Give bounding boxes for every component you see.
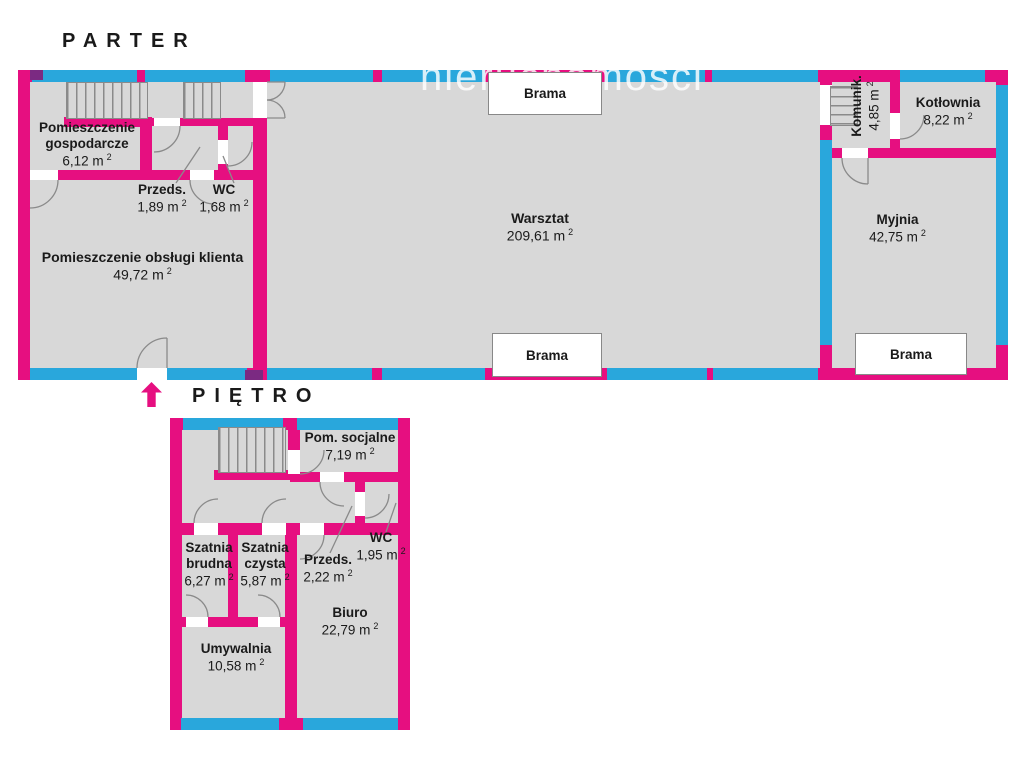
room-name: Przeds. (298, 552, 358, 568)
room-name: Szatnia czysta (236, 540, 294, 572)
room-name: WC (352, 530, 410, 546)
area-sup: 2 (865, 81, 875, 86)
door-arc (365, 494, 389, 518)
door-arc (186, 595, 208, 617)
room-name: Pomieszczenie obsługi klienta (30, 249, 255, 266)
room-area: 1,95 m2 (352, 546, 410, 563)
area-sup: 2 (182, 198, 187, 208)
area-value: 4,85 m (866, 89, 881, 130)
area-sup: 2 (968, 111, 973, 121)
area-sup: 2 (568, 227, 573, 237)
leader-line (386, 503, 396, 532)
area-value: 5,87 m (240, 573, 281, 588)
door-arc (228, 142, 252, 166)
area-sup: 2 (259, 657, 264, 667)
area-value: 6,27 m (184, 573, 225, 588)
door-arc (30, 180, 58, 208)
area-sup: 2 (921, 228, 926, 238)
leader-line (330, 506, 352, 553)
area-value: 209,61 m (507, 227, 565, 243)
area-value: 49,72 m (113, 266, 164, 282)
door-arc (194, 499, 218, 523)
door-arc (842, 158, 868, 184)
room-label-warsztat: Warsztat 209,61 m2 (460, 210, 620, 244)
room-name: Biuro (305, 605, 395, 621)
room-area: 2,22 m2 (298, 568, 358, 585)
room-name: Kotłownia (900, 95, 996, 111)
door-arc (137, 338, 167, 368)
leader-line (176, 147, 200, 183)
room-area: 49,72 m2 (30, 266, 255, 283)
leader-line (223, 156, 234, 183)
room-area: 7,19 m2 (302, 446, 398, 463)
room-area: 10,58 m2 (186, 657, 286, 674)
area-sup: 2 (348, 568, 353, 578)
room-label-obslugi-klienta: Pomieszczenie obsługi klienta 49,72 m2 (30, 249, 255, 283)
room-label-przeds-pietro: Przeds. 2,22 m2 (298, 552, 358, 585)
area-sup: 2 (370, 446, 375, 456)
room-label-wc-parter: WC 1,68 m2 (196, 182, 252, 215)
door-arc (320, 482, 344, 506)
door-arc (267, 82, 285, 100)
area-value: 7,19 m (325, 447, 366, 462)
room-area: 5,87 m2 (236, 572, 294, 589)
room-label-umywalnia: Umywalnia 10,58 m2 (186, 641, 286, 674)
area-value: 42,75 m (869, 229, 918, 244)
room-name: Myjnia (840, 212, 955, 228)
room-label-pomieszczenie-gospodarcze: Pomieszczenie gospodarcze 6,12 m2 (28, 120, 146, 169)
room-name: Warsztat (460, 210, 620, 227)
pietro-title: PIĘTRO (192, 385, 320, 408)
room-name: Komunik. (849, 63, 865, 149)
door-arc (154, 126, 180, 152)
room-label-szatnia-brudna: Szatnia brudna 6,27 m2 (178, 540, 240, 589)
area-value: 1,95 m (356, 547, 397, 562)
room-name: Pomieszczenie gospodarcze (28, 120, 146, 152)
room-name: Szatnia brudna (178, 540, 240, 572)
door-arc (267, 100, 285, 118)
room-area: 22,79 m2 (305, 621, 395, 638)
door-arc (262, 499, 286, 523)
area-value: 6,12 m (62, 153, 103, 168)
parter-title: PARTER (62, 30, 197, 53)
room-area: 6,12 m2 (28, 152, 146, 169)
area-sup: 2 (401, 546, 406, 556)
area-sup: 2 (229, 572, 234, 582)
area-value: 1,89 m (137, 199, 178, 214)
area-sup: 2 (244, 198, 249, 208)
area-value: 1,68 m (199, 199, 240, 214)
room-area: 1,68 m2 (196, 198, 252, 215)
room-label-wc-pietro: WC 1,95 m2 (352, 530, 410, 563)
area-sup: 2 (167, 266, 172, 276)
room-label-szatnia-czysta: Szatnia czysta 5,87 m2 (236, 540, 294, 589)
room-area: 42,75 m2 (840, 228, 955, 245)
area-value: 8,22 m (923, 112, 964, 127)
room-area: 8,22 m2 (900, 111, 996, 128)
room-label-pom-socjalne: Pom. socjalne 7,19 m2 (302, 430, 398, 463)
door-arc (258, 595, 280, 617)
room-area: 209,61 m2 (460, 227, 620, 244)
room-label-kotlownia: Kotłownia 8,22 m2 (900, 95, 996, 128)
room-name: Umywalnia (186, 641, 286, 657)
area-value: 2,22 m (303, 569, 344, 584)
area-value: 10,58 m (208, 658, 257, 673)
floor-plan: PARTER PIĘTRO nie (0, 0, 1024, 768)
room-name: Przeds. (130, 182, 194, 198)
room-name: WC (196, 182, 252, 198)
area-sup: 2 (285, 572, 290, 582)
room-label-biuro: Biuro 22,79 m2 (305, 605, 395, 638)
room-label-przeds-parter: Przeds. 1,89 m2 (130, 182, 194, 215)
room-area: 6,27 m2 (178, 572, 240, 589)
area-value: 22,79 m (322, 622, 371, 637)
room-name: Pom. socjalne (302, 430, 398, 446)
area-sup: 2 (373, 621, 378, 631)
room-label-komunik: Komunik. 4,85 m2 (849, 63, 889, 149)
room-area: 4,85 m2 (865, 63, 882, 149)
area-sup: 2 (107, 152, 112, 162)
room-area: 1,89 m2 (130, 198, 194, 215)
room-label-myjnia: Myjnia 42,75 m2 (840, 212, 955, 245)
